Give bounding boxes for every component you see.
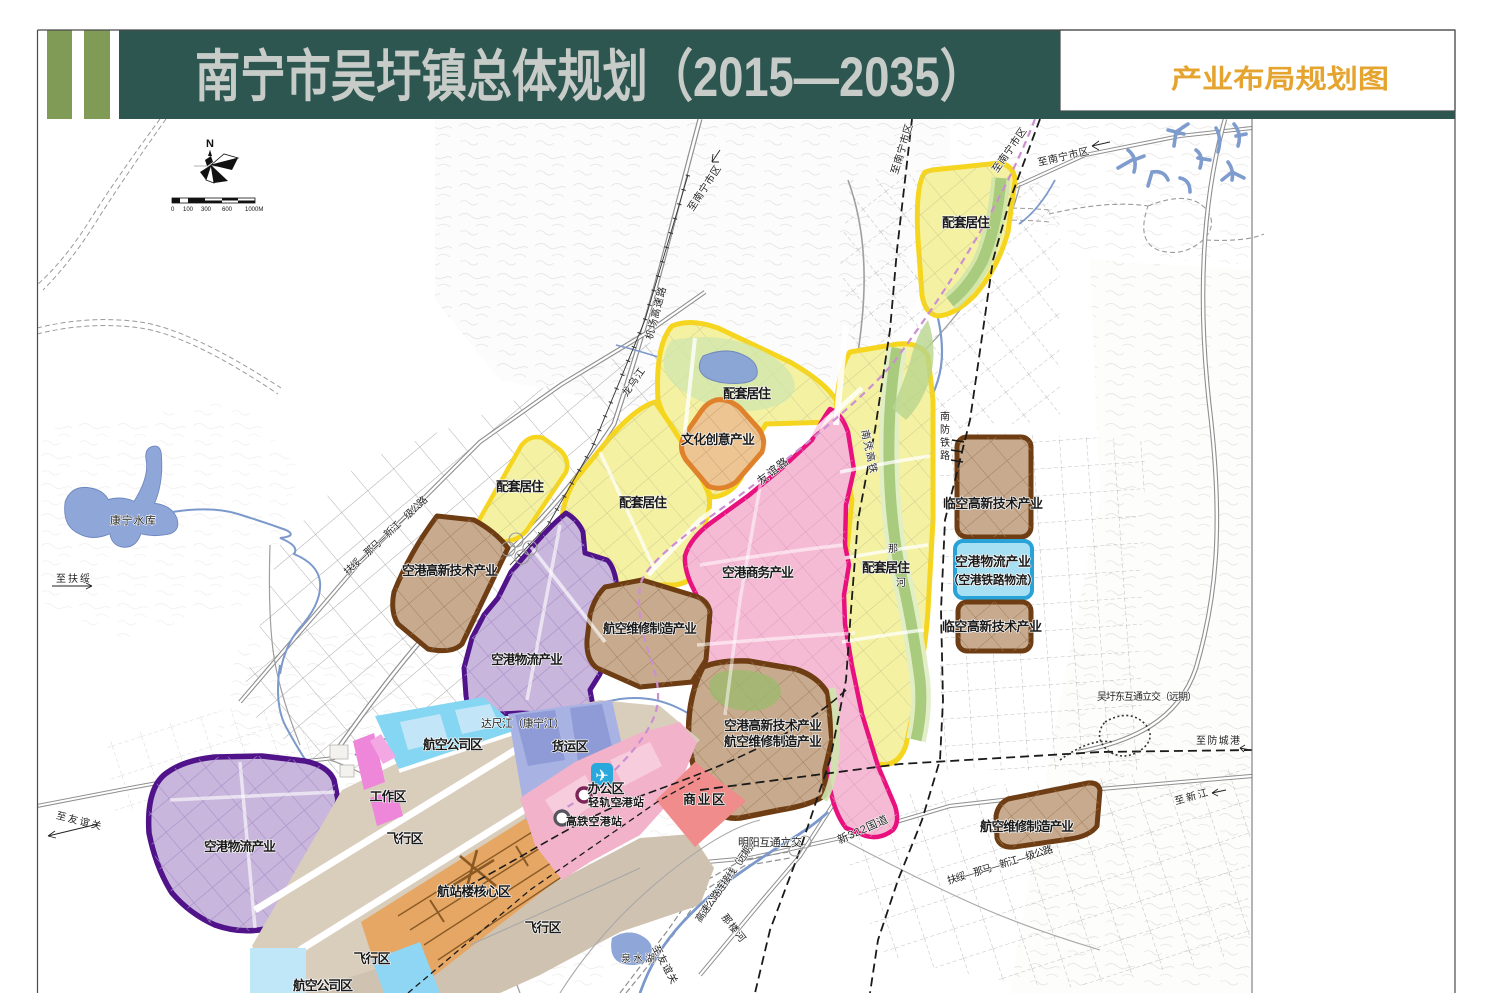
svg-text:航空维修制造产业: 航空维修制造产业 <box>724 734 822 749</box>
svg-text:康宁水库: 康宁水库 <box>110 513 156 527</box>
svg-text:空港高新技术产业: 空港高新技术产业 <box>402 563 498 578</box>
svg-text:至防城港: 至防城港 <box>1196 734 1240 747</box>
svg-text:南宁市吴圩镇总体规划（2015—2035）: 南宁市吴圩镇总体规划（2015—2035） <box>195 45 985 108</box>
svg-text:防: 防 <box>940 423 950 436</box>
svg-text:达尺江（康宁江）: 达尺江（康宁江） <box>481 716 565 730</box>
svg-text:高铁空港站: 高铁空港站 <box>566 814 622 828</box>
svg-text:商业区: 商业区 <box>683 792 725 807</box>
svg-text:配套居住: 配套居住 <box>619 495 667 510</box>
svg-text:南: 南 <box>940 410 950 423</box>
svg-text:明阳互通立交: 明阳互通立交 <box>738 835 802 849</box>
svg-text:飞行区: 飞行区 <box>525 920 562 935</box>
svg-text:（空港铁路物流）: （空港铁路物流） <box>947 572 1039 587</box>
svg-text:1000M: 1000M <box>245 207 263 213</box>
svg-text:航空公司区: 航空公司区 <box>293 978 353 993</box>
svg-text:N: N <box>206 138 214 150</box>
svg-text:铁: 铁 <box>940 436 950 449</box>
svg-text:轻轨空港站: 轻轨空港站 <box>588 795 644 809</box>
svg-text:文化创意产业: 文化创意产业 <box>681 432 755 447</box>
svg-text:货运区: 货运区 <box>552 739 589 754</box>
svg-text:配套居住: 配套居住 <box>723 386 771 401</box>
svg-text:航空维修制造产业: 航空维修制造产业 <box>603 621 697 636</box>
svg-text:飞行区: 飞行区 <box>354 951 391 966</box>
svg-text:空港物流产业: 空港物流产业 <box>204 839 276 854</box>
svg-text:空港物流产业: 空港物流产业 <box>491 652 563 667</box>
svg-text:配套居住: 配套居住 <box>496 479 544 494</box>
svg-text:300: 300 <box>201 207 212 213</box>
svg-text:飞行区: 飞行区 <box>387 831 424 846</box>
svg-text:空港高新技术产业: 空港高新技术产业 <box>724 718 822 733</box>
svg-text:临空高新技术产业: 临空高新技术产业 <box>942 619 1042 634</box>
svg-text:吴圩东互通立交（远期）: 吴圩东互通立交（远期） <box>1097 690 1197 703</box>
svg-text:路: 路 <box>940 449 950 462</box>
svg-text:配套居住: 配套居住 <box>862 560 910 575</box>
svg-text:配套居住: 配套居住 <box>942 215 990 230</box>
svg-text:工作区: 工作区 <box>370 789 407 804</box>
svg-text:航站楼核心区: 航站楼核心区 <box>437 884 511 899</box>
svg-text:航空公司区: 航空公司区 <box>423 737 483 752</box>
svg-text:空港商务产业: 空港商务产业 <box>722 565 794 580</box>
svg-text:办公区: 办公区 <box>588 781 625 796</box>
svg-text:100: 100 <box>183 207 194 213</box>
svg-text:产业布局规划图: 产业布局规划图 <box>1171 64 1389 94</box>
svg-text:航空维修制造产业: 航空维修制造产业 <box>980 819 1074 834</box>
svg-text:临空高新技术产业: 临空高新技术产业 <box>943 496 1043 511</box>
svg-text:至扶绥: 至扶绥 <box>56 572 90 585</box>
svg-text:空港物流产业: 空港物流产业 <box>955 554 1031 569</box>
svg-text:那: 那 <box>888 543 898 555</box>
svg-text:河: 河 <box>896 577 906 589</box>
svg-text:泉水湖: 泉水湖 <box>621 952 655 965</box>
svg-text:600: 600 <box>222 207 233 213</box>
